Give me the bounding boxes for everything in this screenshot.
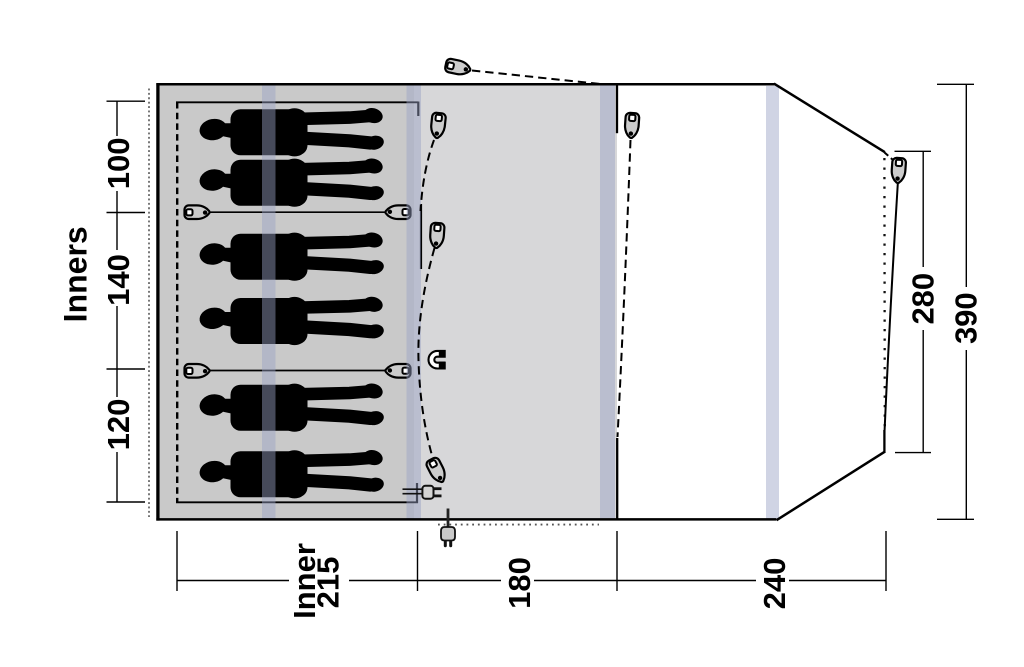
svg-text:390: 390 [949, 292, 984, 344]
svg-text:240: 240 [757, 558, 792, 610]
svg-text:280: 280 [906, 273, 941, 325]
svg-text:140: 140 [101, 254, 136, 306]
svg-text:180: 180 [502, 557, 537, 609]
svg-text:100: 100 [101, 138, 136, 190]
svg-text:Inners: Inners [58, 226, 94, 322]
svg-text:120: 120 [101, 399, 136, 451]
svg-text:215: 215 [311, 557, 346, 609]
